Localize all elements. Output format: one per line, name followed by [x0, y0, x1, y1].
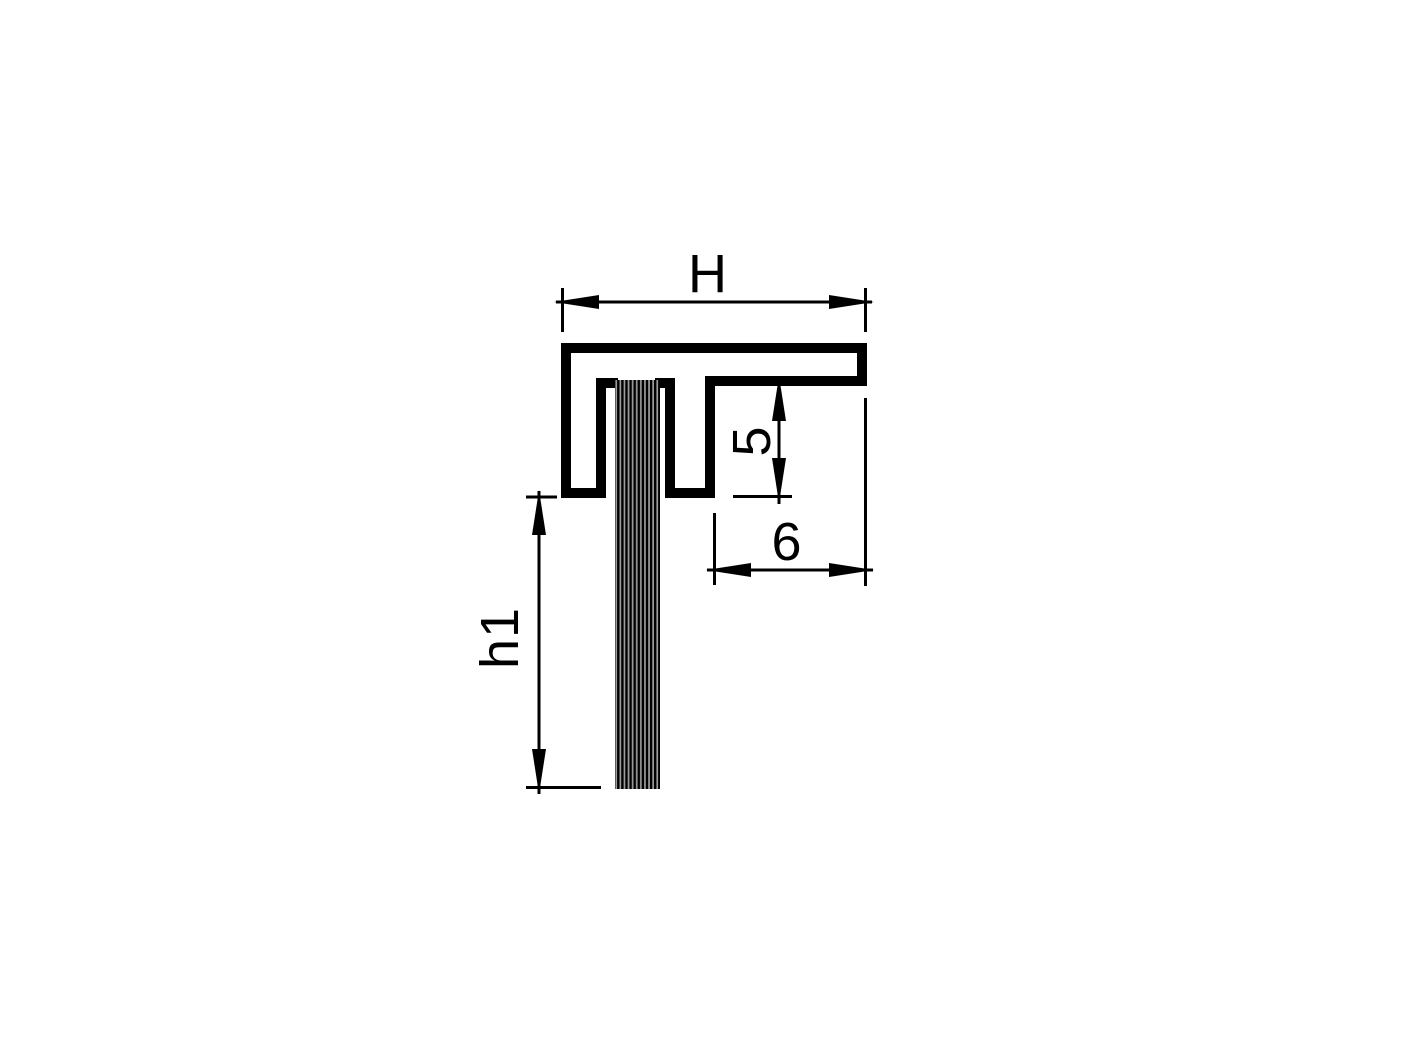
bristle-bundle — [615, 380, 660, 789]
h-arrow-right-icon — [829, 295, 874, 309]
left-inner-wall — [596, 378, 606, 498]
left-hook-bottom — [561, 488, 606, 498]
right-inner-wall — [665, 378, 675, 498]
dimension-overall-width: H — [554, 244, 874, 332]
left-outer-wall — [561, 343, 571, 498]
h1-dimension-label: h1 — [470, 607, 530, 669]
right-hook-bottom — [665, 488, 715, 498]
six-arrow-right-icon — [829, 563, 874, 577]
profile-cross-section — [561, 343, 867, 498]
drawing-canvas: H 5 6 h1 — [0, 0, 1417, 1062]
five-dimension-label: 5 — [722, 425, 782, 456]
dimension-arm-depth: 5 — [722, 376, 792, 504]
technical-drawing: H 5 6 h1 — [0, 0, 1417, 1062]
right-outer-wall — [705, 376, 715, 498]
top-flange-underside — [705, 376, 867, 386]
dimension-brush-free-length: h1 — [470, 490, 601, 794]
h-arrow-left-icon — [554, 295, 599, 309]
six-dimension-label: 6 — [771, 512, 802, 572]
six-arrow-left-icon — [706, 563, 751, 577]
clamp-cap-left — [596, 378, 618, 388]
top-flange-top-edge — [561, 343, 867, 353]
h-dimension-label: H — [688, 244, 728, 304]
